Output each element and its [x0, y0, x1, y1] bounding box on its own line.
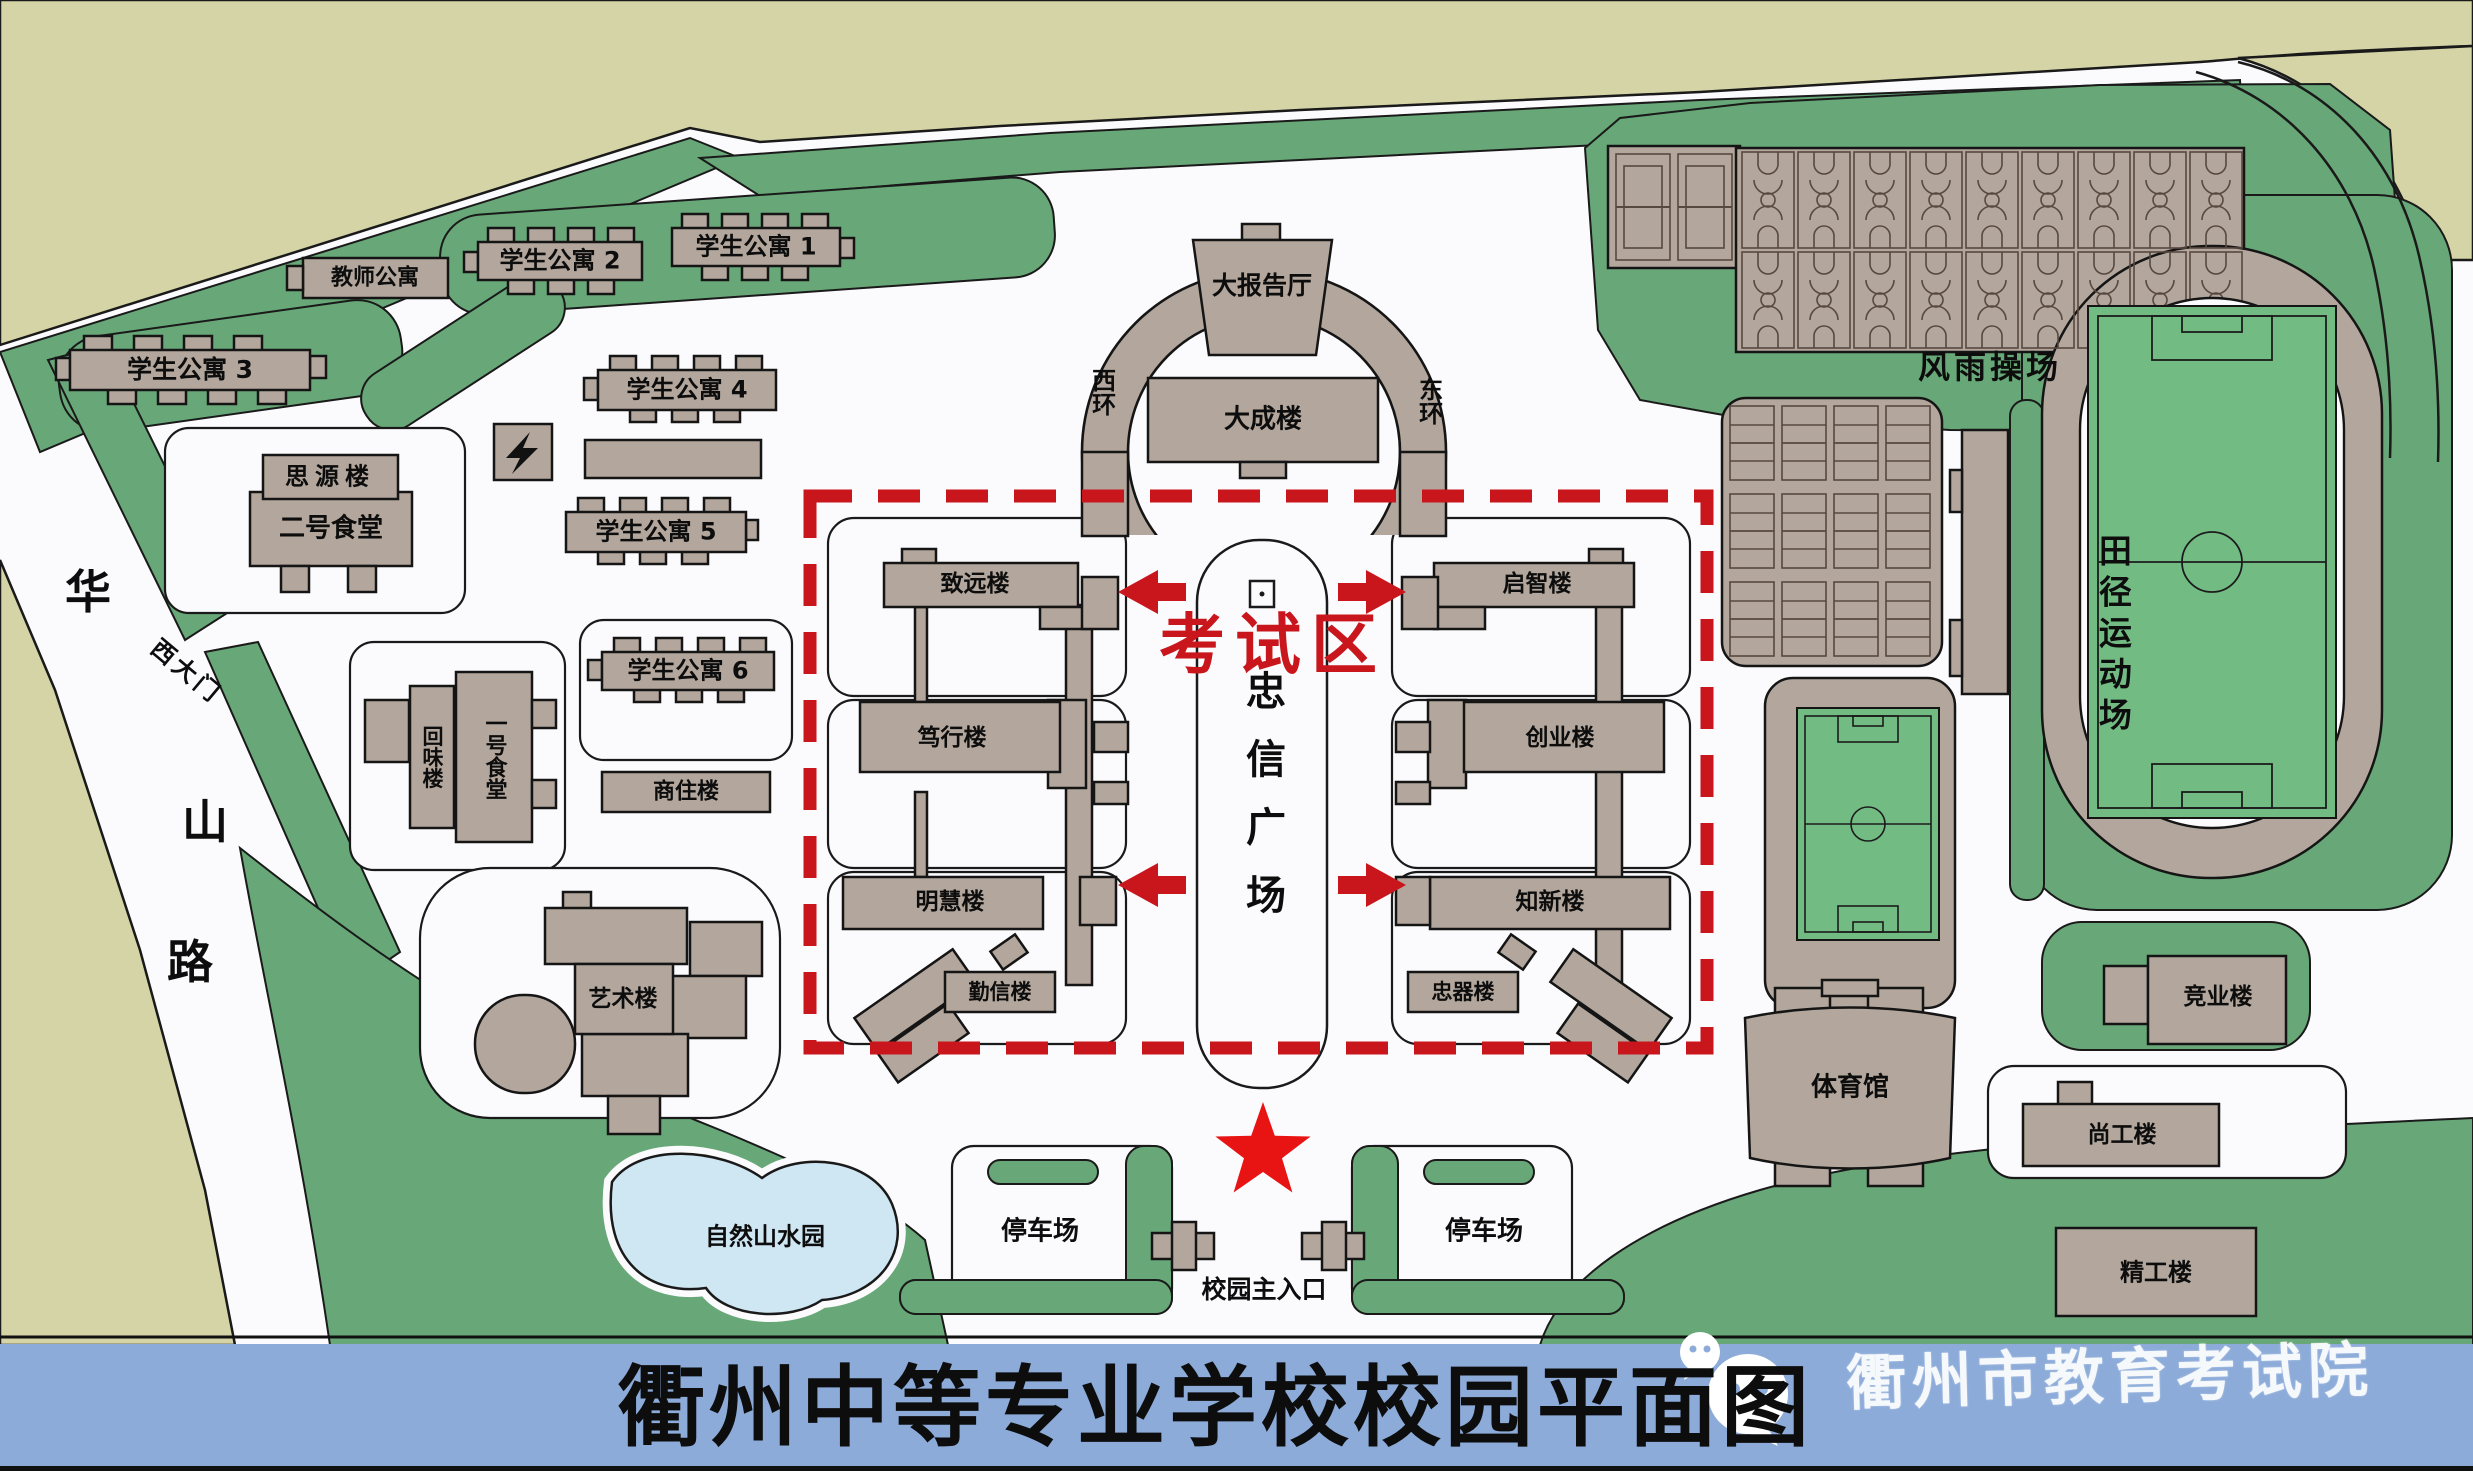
building-chuangye-conn1 — [1396, 722, 1430, 752]
building-west-spine — [1066, 605, 1092, 985]
mid-soccer-field — [1797, 708, 1939, 940]
label-huiwei: 回味楼 — [421, 726, 443, 789]
label-tiyuguan: 体育馆 — [1811, 1074, 1889, 1101]
label-road-lu: 路 — [167, 938, 213, 986]
label-zhongqi: 忠器楼 — [1432, 981, 1495, 1003]
building-dabaogaoting-tab — [1242, 224, 1280, 240]
building-chuangye-conn2 — [1396, 782, 1430, 804]
label-parking-left: 停车场 — [1001, 1218, 1079, 1245]
label-duxing: 笃行楼 — [918, 726, 987, 750]
label-jingye: 竞业楼 — [2184, 985, 2253, 1009]
label-xihuan: 西环 — [1088, 368, 1113, 416]
volleyball-block — [1722, 398, 1942, 666]
grandstand-step2 — [1950, 620, 1962, 676]
label-minghui: 明慧楼 — [916, 890, 985, 914]
label-road-shan: 山 — [182, 798, 228, 846]
label-student-apt-6: 学生公寓 6 — [627, 658, 748, 683]
label-nature-garden: 自然山水园 — [705, 1224, 825, 1249]
building-minghui-conn — [1080, 877, 1116, 925]
building-west-wall2 — [915, 792, 927, 877]
lawn-pl-a — [988, 1160, 1098, 1184]
label-donghuan: 东环 — [1415, 377, 1440, 425]
label-athletics-track: 田径运动场 — [2095, 534, 2130, 739]
label-siyuan: 思源楼 — [285, 464, 375, 489]
lawn-strip-mid — [2010, 400, 2044, 900]
label-qinxin: 勤信楼 — [969, 981, 1032, 1003]
building-chuangye-annex — [1428, 700, 1466, 788]
building-tiyuguan-stair3 — [1822, 980, 1878, 996]
gate-right-pillar — [1322, 1222, 1346, 1270]
building-shanggong-tab — [2058, 1082, 2092, 1106]
label-exam-zone: 考试区 — [1159, 610, 1387, 679]
building-dacheng-tab — [1240, 462, 1286, 478]
label-chuangye: 创业楼 — [1526, 726, 1595, 750]
page-title: 衢州中等专业学校校园平面图 — [617, 1362, 1813, 1454]
building-jingye-annex — [2104, 966, 2148, 1024]
lawn-pr-c — [1352, 1280, 1624, 1314]
label-dacheng: 大成楼 — [1224, 406, 1302, 433]
building-qizhi-step — [1434, 607, 1485, 629]
label-jinggong: 精工楼 — [2120, 1260, 2192, 1285]
label-yishu: 艺术楼 — [589, 987, 658, 1011]
label-zhixin: 知新楼 — [1516, 890, 1585, 914]
building-duxing-conn2 — [1094, 782, 1128, 804]
label-zhongxin-plaza: 忠信广场 — [1241, 670, 1283, 942]
label-student-apt-2: 学生公寓 2 — [499, 248, 620, 273]
label-student-apt-5: 学生公寓 5 — [595, 519, 716, 544]
label-student-apt-3: 学生公寓 3 — [127, 357, 253, 383]
label-fengyu-playground: 风雨操场 — [1918, 351, 2062, 385]
label-shanggong: 尚工楼 — [2088, 1123, 2157, 1147]
building-unlabeled-bar — [585, 440, 761, 478]
label-student-apt-4: 学生公寓 4 — [626, 377, 747, 402]
label-road-hua: 华 — [65, 568, 111, 616]
plaza-monument-dot — [1260, 592, 1265, 597]
bottom-edge — [0, 1466, 2473, 1471]
lawn-pl-c — [900, 1280, 1172, 1314]
building-teacher-apt-stub — [287, 266, 303, 290]
campus-map: 教师公寓 学生公寓 2 学生公寓 1 学生公寓 3 学生公寓 4 学生公寓 5 … — [0, 0, 2473, 1471]
label-shangzhu: 商住楼 — [653, 780, 719, 803]
building-zhiyuan-conn — [1082, 577, 1118, 629]
label-dabaogaoting: 大报告厅 — [1212, 273, 1312, 299]
label-teacher-apt: 教师公寓 — [331, 266, 419, 289]
label-canteen2: 二号食堂 — [279, 515, 383, 542]
label-qizhi: 启智楼 — [1503, 572, 1572, 596]
watermark: 衢州市教育考试院 — [1845, 1340, 2374, 1417]
building-canteen2-leg2 — [348, 566, 376, 592]
gate-left-pillar — [1172, 1222, 1196, 1270]
label-canteen1: 一号食堂 — [482, 712, 505, 800]
building-duxing-conn1 — [1094, 722, 1128, 752]
grandstand — [1962, 430, 2008, 694]
building-qizhi-conn — [1402, 577, 1438, 629]
label-parking-right: 停车场 — [1445, 1218, 1523, 1245]
building-canteen2-leg1 — [281, 566, 309, 592]
label-zhiyuan: 致远楼 — [941, 572, 1010, 596]
label-student-apt-1: 学生公寓 1 — [695, 234, 816, 259]
lawn-pr-a — [1424, 1160, 1534, 1184]
grandstand-step1 — [1950, 470, 1962, 512]
building-west-wall1 — [915, 607, 927, 702]
label-main-entrance: 校园主入口 — [1201, 1277, 1326, 1303]
